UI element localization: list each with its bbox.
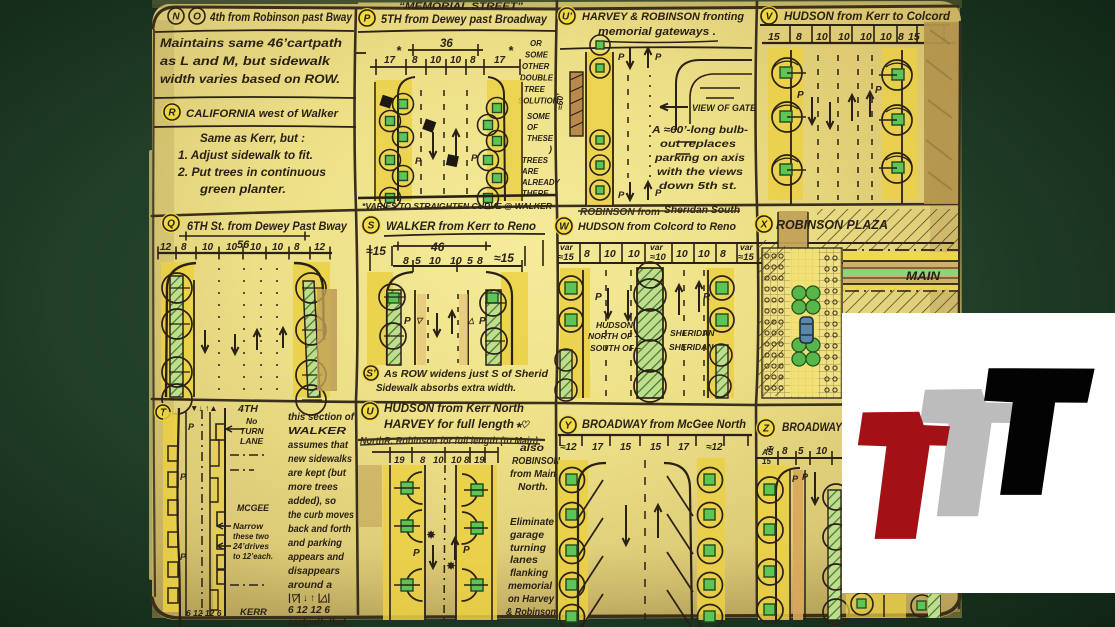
svg-text:U: U [366,407,374,418]
svg-text:24’drives: 24’drives [232,542,270,551]
svg-text:“MEMORIAL STREET”: “MEMORIAL STREET” [399,1,523,12]
svg-text:Maintains same 46’cartpath: Maintains same 46’cartpath [160,36,342,50]
svg-text:P: P [415,156,422,167]
svg-text:10: 10 [880,31,892,43]
svg-text:green planter.: green planter. [199,184,286,196]
svg-text:10: 10 [838,31,850,43]
svg-text:WALKER from Kerr to Reno: WALKER from Kerr to Reno [386,221,536,233]
svg-text:10: 10 [604,248,616,260]
svg-text:SOLUTION: SOLUTION [518,97,559,106]
svg-text:10: 10 [450,55,462,66]
svg-text:8: 8 [782,446,788,457]
svg-text:flanking: flanking [510,568,548,579]
svg-text:P: P [655,52,662,63]
svg-text:≈15: ≈15 [738,252,754,263]
svg-text:5TH from Dewey past Broadway: 5TH from Dewey past Broadway [381,14,548,26]
svg-text:17: 17 [678,442,690,453]
svg-text:S’: S’ [366,369,376,380]
svg-text:CALIFORNIA west of Walker: CALIFORNIA west of Walker [186,108,339,120]
svg-text:AS: AS [761,448,774,457]
svg-text:P: P [188,422,195,432]
svg-text:P: P [802,472,809,482]
svg-text:8: 8 [796,31,802,43]
svg-text:var: var [650,242,663,252]
svg-text:P: P [479,316,486,327]
svg-text:): ) [548,144,552,154]
svg-text:8: 8 [720,248,726,260]
svg-text:R: R [168,108,176,119]
svg-text:P: P [618,190,625,201]
svg-text:✸: ✸ [426,528,436,542]
svg-text:THESE: THESE [527,134,554,143]
svg-text:HUDSON: HUDSON [596,320,634,330]
svg-text:8: 8 [477,255,483,267]
svg-text:TREES: TREES [522,156,549,165]
svg-text:2. Put trees in continuous: 2. Put trees in continuous [177,167,326,179]
svg-text:down 5th st.: down 5th st. [659,180,737,192]
svg-text:O: O [193,12,201,23]
svg-text:As ROW widens just S of Sherid: As ROW widens just S of Sherid [383,368,549,380]
svg-text:P: P [364,14,371,25]
svg-text:HARVEY & ROBINSON fronting: HARVEY & ROBINSON fronting [582,11,744,23]
svg-text:17: 17 [592,442,604,453]
svg-text:P: P [875,85,882,96]
svg-text:P: P [463,545,470,556]
svg-text:17: 17 [494,55,506,66]
svg-text:Eliminate: Eliminate [510,517,554,528]
svg-text:15: 15 [620,442,632,453]
svg-text:≈60’: ≈60’ [555,93,565,110]
svg-text:≈12: ≈12 [706,442,723,453]
svg-text:8: 8 [420,455,426,466]
svg-text:△: △ [467,316,475,325]
svg-text:5: 5 [467,255,473,267]
svg-text:8: 8 [181,242,187,253]
svg-text:HARVEY for full length: HARVEY for full length [384,419,514,431]
svg-text:8: 8 [898,31,904,43]
svg-text:KERR: KERR [240,607,267,618]
svg-text:10: 10 [429,255,441,267]
svg-text:SHERIDAN: SHERIDAN [669,342,714,352]
svg-text:5: 5 [415,255,421,267]
svg-text:added), so: added), so [288,496,336,507]
svg-text:are kept (but: are kept (but [288,468,347,479]
svg-text:≈12: ≈12 [560,442,577,453]
svg-text:≈15: ≈15 [366,244,386,258]
svg-text:36: 36 [440,38,453,50]
svg-text:ARE: ARE [521,167,539,176]
svg-text:TREE: TREE [524,85,546,94]
svg-text:disappears: disappears [288,566,340,577]
svg-text:No: No [246,416,257,426]
svg-text:garage: garage [509,530,544,541]
svg-text:WALKER: WALKER [288,426,347,437]
svg-text:assumes that: assumes that [288,440,349,451]
svg-text:MAIN: MAIN [906,271,941,283]
svg-text:as L and M, but sidewalk: as L and M, but sidewalk [160,54,332,68]
svg-text:North.: North. [518,482,548,493]
svg-text:4TH: 4TH [237,403,258,415]
svg-text:new sidewalks: new sidewalks [288,454,352,465]
svg-text:more trees: more trees [288,482,338,493]
svg-text:1. Adjust sidewalk to fit.: 1. Adjust sidewalk to fit. [178,150,313,162]
svg-text:10: 10 [698,248,710,260]
svg-text:this section of: this section of [288,412,356,423]
svg-text:memorial gateways .: memorial gateways . [598,26,716,38]
svg-text:SOME: SOME [525,51,549,60]
svg-text:the curb moves: the curb moves [288,510,354,521]
svg-text:P: P [180,552,187,562]
svg-text:5: 5 [798,446,804,457]
svg-text:appears and: appears and [288,552,345,563]
svg-text:10: 10 [272,242,284,253]
svg-text:10: 10 [226,242,238,253]
svg-text:P: P [404,316,411,327]
svg-text:6 12 12 6: 6 12 12 6 [288,605,330,616]
svg-text:19: 19 [394,455,405,466]
svg-text:var: var [560,242,573,252]
svg-text:with the views: with the views [657,166,743,178]
svg-text:turning: turning [510,543,546,554]
svg-text:out replaces: out replaces [660,138,736,150]
svg-text:Same as Kerr, but :: Same as Kerr, but : [200,133,305,145]
svg-text:BROADWAY from McGee North: BROADWAY from McGee North [582,419,746,431]
svg-text:10: 10 [430,55,442,66]
svg-text:▼↓ ↑▲: ▼↓ ↑▲ [190,403,218,413]
svg-text:10: 10 [250,242,262,253]
svg-text:also: also [520,443,544,454]
svg-text:8: 8 [412,55,418,66]
svg-text:N: N [172,12,180,23]
svg-text:OF: OF [527,123,538,132]
svg-text:10: 10 [816,31,828,43]
svg-text:P: P [618,52,625,63]
svg-text:SHERIDAN: SHERIDAN [670,328,715,338]
svg-text:width varies based on ROW.: width varies based on ROW. [160,72,340,86]
svg-text:HUDSON from Kerr to Colcord: HUDSON from Kerr to Colcord [784,11,951,23]
svg-text:15: 15 [768,31,780,43]
svg-text:HUDSON from Kerr North: HUDSON from Kerr North [384,403,524,415]
svg-text:parking on axis: parking on axis [654,152,745,164]
svg-text:8: 8 [403,255,409,267]
svg-text:NORTH OF –: NORTH OF – [588,331,640,341]
svg-text:to 12’each.: to 12’each. [233,552,273,561]
svg-text:from Main: from Main [510,469,556,480]
svg-text:10: 10 [628,248,640,260]
svg-text:10: 10 [676,248,688,260]
svg-text:var: var [740,242,753,252]
svg-text:cartpath that: cartpath that [288,617,347,627]
svg-text:Z: Z [762,424,770,435]
svg-text:around a: around a [288,580,332,591]
svg-text:P: P [180,472,187,482]
svg-text:R: R [703,292,711,303]
svg-text:P: P [413,548,420,559]
svg-text:≈10: ≈10 [650,252,666,263]
svg-text:memorial: memorial [508,581,552,592]
svg-text:8: 8 [470,55,476,66]
svg-text:Q: Q [167,219,175,230]
svg-text:X: X [760,220,769,231]
svg-text:≈15: ≈15 [558,252,574,263]
svg-text:10: 10 [202,242,214,253]
svg-text:≈15: ≈15 [494,251,514,265]
svg-text:ROBINSON: ROBINSON [512,456,561,467]
svg-text:P: P [797,90,804,101]
svg-text:4th from Robinson past Bway: 4th from Robinson past Bway [209,10,353,24]
svg-text:TURN: TURN [240,426,264,436]
svg-text:ROBINSON from: ROBINSON from [580,207,660,218]
svg-text:Narrow: Narrow [233,522,264,531]
svg-text:8: 8 [464,455,470,466]
svg-text:U’: U’ [562,12,572,23]
svg-text:VIEW OF GATE: VIEW OF GATE [692,103,757,113]
svg-text:6TH St. from Dewey Past Bway: 6TH St. from Dewey Past Bway [187,221,348,233]
svg-text:OTHER: OTHER [522,62,550,71]
svg-text:on Harvey: on Harvey [508,594,554,605]
svg-text:15: 15 [908,31,920,43]
svg-text:SOME: SOME [527,112,551,121]
svg-text:*VARIES TO STRAIGHTEN CURVE @: *VARIES TO STRAIGHTEN CURVE @ WALKER [362,201,552,211]
svg-text:OR: OR [530,39,542,48]
svg-text:and parking: and parking [288,538,343,549]
svg-text:46: 46 [430,240,445,254]
svg-text:19: 19 [474,455,485,466]
svg-text:15: 15 [650,442,662,453]
svg-text:LANE: LANE [240,436,263,446]
svg-text:SOUTH OF –: SOUTH OF – [590,343,641,353]
svg-text:lanes: lanes [510,555,538,566]
svg-text:8: 8 [584,248,590,260]
svg-text:10: 10 [450,255,462,267]
svg-text:Sidewalk absorbs extra width.: Sidewalk absorbs extra width. [376,382,516,394]
svg-text:✸: ✸ [446,559,456,573]
svg-text:6 12 12 6: 6 12 12 6 [186,608,222,618]
svg-text:10: 10 [816,446,828,457]
svg-text:12: 12 [160,242,172,253]
svg-text:ALREADY: ALREADY [521,178,560,187]
svg-text:12: 12 [314,242,326,253]
svg-text:A ≈60’-long bulb-: A ≈60’-long bulb- [651,124,749,136]
svg-text:|▽| ↓ ↑ |△|: |▽| ↓ ↑ |△| [288,593,330,604]
svg-text:P: P [792,474,799,484]
svg-text:*: * [516,419,522,435]
svg-text:DOUBLE: DOUBLE [520,74,554,83]
svg-text:HUDSON from Colcord to Reno: HUDSON from Colcord to Reno [578,221,736,233]
svg-text:8: 8 [294,242,300,253]
svg-text:& Robinson: & Robinson [506,607,556,618]
svg-text:BROADWAY: BROADWAY [782,422,843,434]
svg-text:10: 10 [451,455,462,466]
svg-text:back and forth: back and forth [288,524,351,535]
svg-text:MCGEE: MCGEE [237,503,270,513]
svg-text:17: 17 [384,55,396,66]
svg-text:♡: ♡ [520,420,530,431]
svg-text:P: P [471,153,478,164]
svg-text:W: W [559,222,570,233]
svg-text:10: 10 [433,455,444,466]
svg-text:S: S [368,221,375,232]
svg-text:10: 10 [860,31,872,43]
svg-text:these two: these two [233,532,269,541]
svg-text:P: P [595,292,602,303]
